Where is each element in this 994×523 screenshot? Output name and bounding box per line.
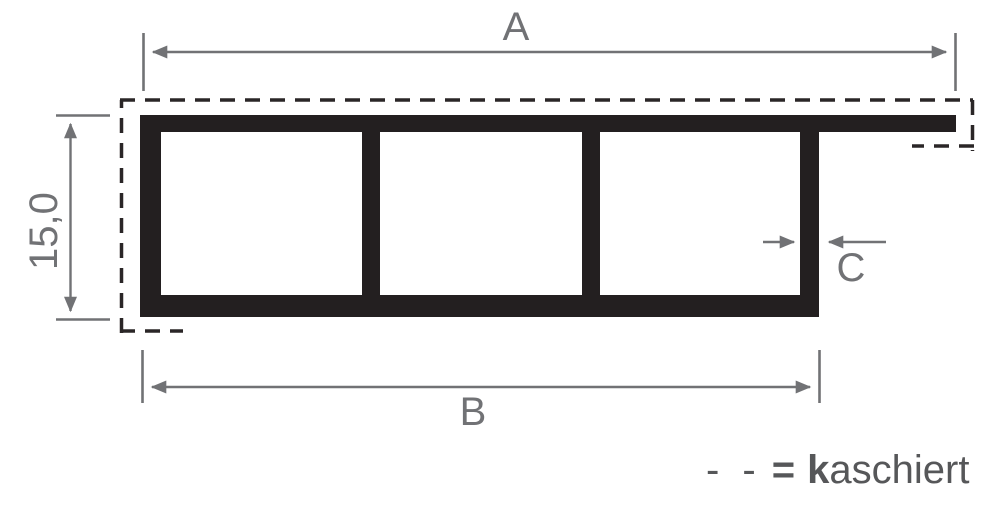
profile-bottom-wall (140, 295, 819, 317)
diagram-canvas: A 15,0 B C - - = kaschiert (0, 0, 994, 523)
legend-equals-sign: = (772, 446, 795, 494)
legend-term: kaschiert (807, 446, 969, 494)
legend-term-bold-prefix: k (807, 448, 829, 492)
profile-left-wall (140, 115, 161, 317)
dimension-c-label: C (821, 245, 881, 291)
dimension-b-label: B (433, 389, 513, 435)
legend-term-rest: aschiert (829, 448, 969, 492)
dimension-a-label: A (476, 4, 556, 50)
dimension-height-label: 15,0 (21, 161, 67, 301)
profile-inner-wall-2 (582, 131, 600, 296)
legend-dash-symbol: - - (706, 446, 762, 494)
profile-right-wall (800, 115, 819, 317)
profile-inner-wall-1 (362, 131, 380, 296)
profile-top-flange (140, 115, 956, 132)
legend-kaschiert: - - = kaschiert (706, 446, 969, 494)
